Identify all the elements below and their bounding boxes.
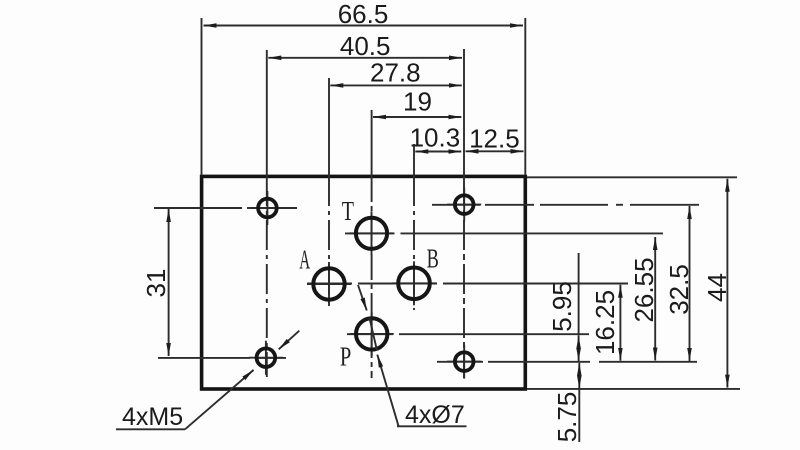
svg-text:5.95: 5.95 <box>547 281 577 332</box>
svg-text:27.8: 27.8 <box>370 57 421 87</box>
svg-text:19: 19 <box>403 86 432 116</box>
svg-text:16.25: 16.25 <box>590 290 620 355</box>
svg-text:B: B <box>427 243 439 273</box>
svg-text:P: P <box>340 343 351 372</box>
svg-text:12.5: 12.5 <box>469 124 520 154</box>
svg-text:31: 31 <box>141 269 171 298</box>
svg-text:66.5: 66.5 <box>338 0 389 29</box>
svg-text:A: A <box>299 245 310 275</box>
svg-text:32.5: 32.5 <box>664 264 694 315</box>
svg-text:26.55: 26.55 <box>629 257 659 322</box>
svg-text:44: 44 <box>702 273 732 302</box>
svg-text:T: T <box>342 197 355 227</box>
svg-text:10.3: 10.3 <box>410 123 461 153</box>
svg-text:4xØ7: 4xØ7 <box>405 401 465 429</box>
svg-text:4xM5: 4xM5 <box>122 403 183 431</box>
svg-text:5.75: 5.75 <box>552 392 582 443</box>
